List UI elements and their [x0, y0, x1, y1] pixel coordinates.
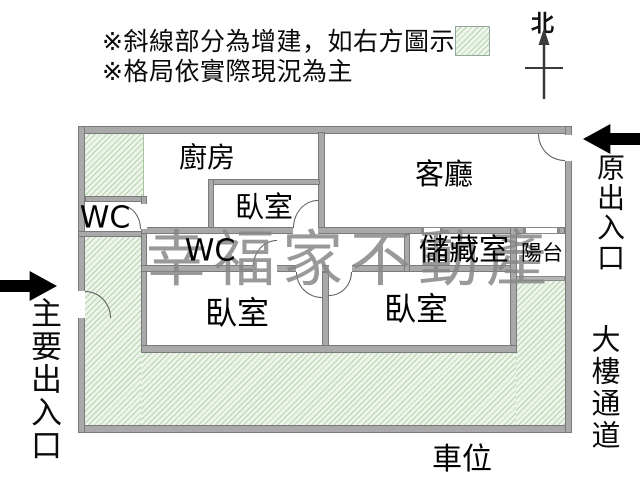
addition-hatch-area — [85, 237, 141, 426]
north-arrow-icon — [518, 27, 570, 103]
hatch-legend-swatch-icon — [455, 26, 490, 56]
room-label-wc-lower: WC — [185, 234, 236, 269]
wall-segment — [78, 126, 572, 134]
room-label-kitchen: 廚房 — [179, 136, 235, 176]
wall-segment — [78, 425, 572, 433]
label-parking: 車位 — [432, 434, 492, 478]
original-entrance-arrow-icon — [583, 124, 640, 154]
door-opening — [78, 291, 85, 318]
door-arc — [538, 134, 565, 161]
addition-hatch-area — [516, 281, 565, 426]
wall-segment — [141, 345, 517, 353]
room-label-bedroom-top: 臥室 — [235, 184, 293, 226]
floor-plan-canvas: ※斜線部分為增建，如右方圖示 ※格局依實際現況為主 北 — [0, 0, 640, 480]
label-main-entrance: 主要出入口 — [21, 297, 66, 462]
room-label-living-room: 客廳 — [415, 151, 473, 193]
label-building-passage: 大樓通道 — [583, 324, 625, 452]
hatch-boundary-line — [143, 134, 144, 197]
wall-segment — [78, 126, 85, 433]
label-original-entrance: 原出入口 — [589, 153, 629, 273]
room-label-balcony: 陽台 — [521, 237, 563, 267]
addition-hatch-area — [141, 353, 516, 426]
door-opening — [565, 135, 572, 161]
room-label-bedroom-right: 臥室 — [384, 284, 448, 330]
wall-segment — [565, 126, 572, 433]
note-line-2: ※格局依實際現況為主 — [102, 52, 353, 88]
addition-hatch-area — [85, 134, 144, 197]
room-label-wc-upper: WC — [80, 201, 131, 236]
room-label-storage: 儲藏室 — [419, 225, 509, 269]
room-label-bedroom-left: 臥室 — [205, 288, 269, 334]
